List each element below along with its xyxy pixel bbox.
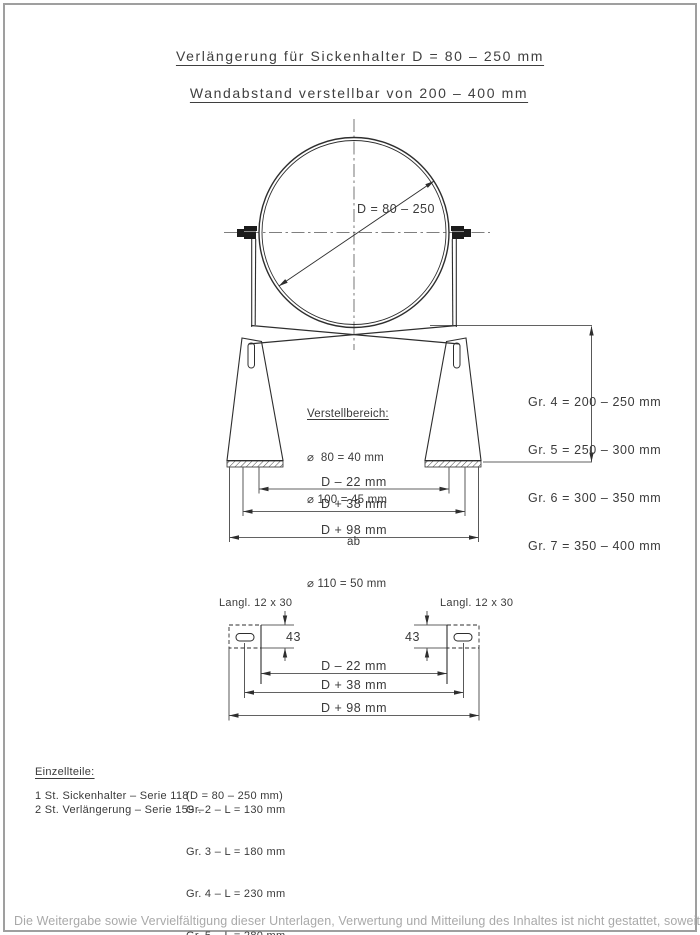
parts-line-2-name: 2 St. Verlängerung – Serie 159 – [35, 804, 204, 816]
footer-line: Die Weitergabe sowie Vervielfältigung di… [14, 914, 700, 929]
diameter-dimension-label: D = 80 – 250 [357, 202, 435, 216]
size-range-table: Gr. 4 = 200 – 250 mm Gr. 5 = 250 – 300 m… [528, 362, 661, 586]
height-dim-label-left: 43 [286, 630, 301, 644]
clamp-bolt-left [237, 226, 257, 239]
dim-label-outer-bottom: D + 98 mm [321, 701, 387, 715]
size-range-row: Gr. 5 = 250 – 300 mm [528, 442, 661, 458]
drawing-page: Verlängerung für Sickenhalter D = 80 – 2… [0, 0, 700, 935]
dim-label-inner-bottom: D – 22 mm [321, 659, 387, 673]
mounting-plate-right [447, 625, 479, 648]
size-range-row: Gr. 6 = 300 – 350 mm [528, 490, 661, 506]
verstellbereich-heading: Verstellbereich: [307, 407, 389, 421]
diameter-dimension-arrow [279, 181, 434, 286]
size-range-row: Gr. 4 = 200 – 250 mm [528, 394, 661, 410]
parts-line-2: 2 St. Verlängerung – Serie 159 – [35, 803, 204, 817]
centerlines [224, 119, 490, 350]
verstellbereich-row: ab [307, 535, 389, 549]
dim-label-middle-top: D + 38 mm [321, 497, 387, 511]
height-dim-label-right: 43 [405, 630, 420, 644]
verstellbereich-row: ⌀ 80 = 40 mm [307, 451, 389, 465]
parts-line-1: 1 St. Sickenhalter – Serie 118 [35, 789, 189, 803]
dim-label-inner-top: D – 22 mm [321, 475, 387, 489]
parts-line-1-name: 1 St. Sickenhalter – Serie 118 [35, 790, 189, 802]
mounting-plate-left [229, 625, 261, 648]
parts-line-2-size: Gr. 2 – L = 130 mm [186, 803, 285, 817]
clamp-bolt-right [451, 226, 471, 239]
parts-heading: Einzellteile: [35, 765, 95, 779]
size-range-row: Gr. 7 = 350 – 400 mm [528, 538, 661, 554]
parts-line-1-size: (D = 80 – 250 mm) [186, 789, 283, 803]
support-leg-right [425, 338, 481, 461]
main-title: Verlängerung für Sickenhalter D = 80 – 2… [176, 48, 544, 64]
slot-label-left: Langl. 12 x 30 [219, 597, 292, 609]
support-leg-left [227, 338, 283, 461]
dim-label-outer-top: D + 98 mm [321, 523, 387, 537]
verstellbereich-row: ⌀ 110 = 50 mm [307, 577, 389, 591]
parts-size-row: Gr. 3 – L = 180 mm [186, 845, 285, 859]
footer-disclaimer: Die Weitergabe sowie Vervielfältigung di… [14, 883, 700, 935]
subtitle: Wandabstand verstellbar von 200 – 400 mm [190, 85, 528, 101]
slot-label-right: Langl. 12 x 30 [440, 597, 513, 609]
dim-label-middle-bottom: D + 38 mm [321, 678, 387, 692]
